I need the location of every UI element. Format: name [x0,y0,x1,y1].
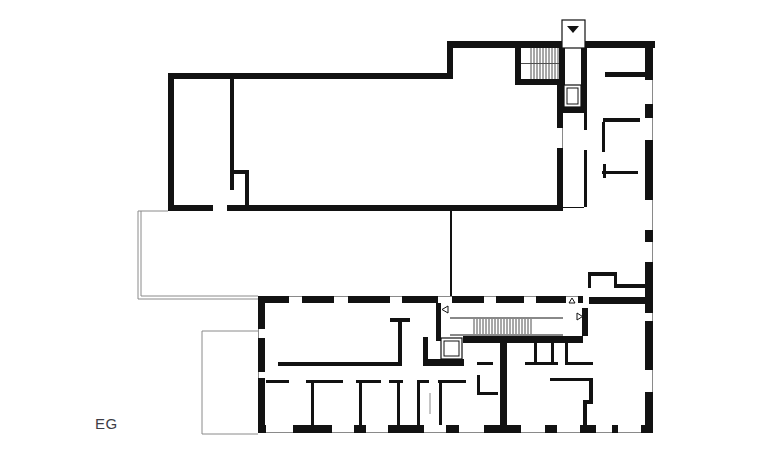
west-terrace-outline [138,211,262,299]
middle-hall [138,211,452,299]
east-facade-windows [645,41,653,433]
door-swing-right-icon [577,313,583,320]
upper-elevator-shaft [559,48,587,113]
entrance-marker [562,20,585,48]
floor-plan-page: EG [0,0,780,456]
corridor-stair [436,303,588,343]
south-wing-west-wall [258,303,265,433]
south-wing-north-wall [258,296,583,303]
southwest-terrace-outline [202,331,258,434]
south-facade-windows [258,425,653,433]
corridor-stair-hatch [474,319,531,334]
upper-hall-walls [168,41,563,211]
door-swing-up-icon [569,298,575,303]
room-partitions [266,318,593,425]
door-swing-left-icon [442,306,448,313]
corridor-elevator [423,337,464,366]
entrance-box [562,20,585,48]
upper-stair [515,47,563,85]
floor-label: EG [95,415,118,433]
floor-plan-drawing [0,0,780,456]
